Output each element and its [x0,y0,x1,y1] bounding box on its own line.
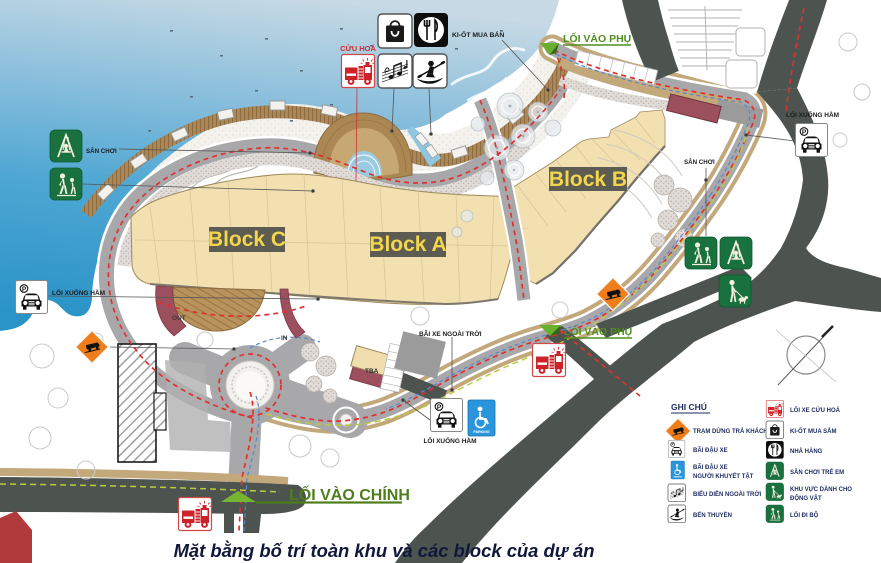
svg-text:SÂN CHƠI: SÂN CHƠI [86,148,117,155]
svg-text:OUT: OUT [172,315,186,322]
svg-text:Block B: Block B [549,168,627,191]
svg-text:IN: IN [281,335,288,342]
svg-text:BÃI XE NGOÀI TRỜI: BÃI XE NGOÀI TRỜI [419,329,482,338]
svg-text:BẾN THUYỀN: BẾN THUYỀN [693,512,732,519]
svg-text:Block A: Block A [369,233,446,256]
svg-text:NHÀ HÀNG: NHÀ HÀNG [790,448,823,455]
svg-text:ĐỘNG VẬT: ĐỘNG VẬT [790,494,822,502]
svg-text:LỐI VÀO PHỤ: LỐI VÀO PHỤ [564,324,632,338]
svg-text:BÃI ĐẬU XE: BÃI ĐẬU XE [693,464,728,471]
svg-text:Mặt bằng bố trí toàn khu và cá: Mặt bằng bố trí toàn khu và các block củ… [174,540,595,561]
svg-text:KI-ỐT MUA SẮM: KI-ỐT MUA SẮM [790,427,836,435]
svg-text:CỨU HOÁ: CỨU HOÁ [340,44,376,53]
svg-text:BÃI ĐẬU XE: BÃI ĐẬU XE [693,447,728,454]
svg-text:LỐI VÀO PHỤ: LỐI VÀO PHỤ [563,31,631,45]
svg-text:TRẠM DỪNG TRẢ KHÁCH: TRẠM DỪNG TRẢ KHÁCH [693,428,768,435]
svg-text:GHI CHÚ: GHI CHÚ [671,401,707,412]
svg-text:NGƯỜI KHUYẾT TẬT: NGƯỜI KHUYẾT TẬT [693,472,754,480]
svg-text:BIỂU DIỄN NGOÀI TRỜI: BIỂU DIỄN NGOÀI TRỜI [693,490,761,498]
svg-text:LỐI XE CỨU HOÁ: LỐI XE CỨU HOÁ [790,407,841,414]
svg-text:LỐI VÀO CHÍNH: LỐI VÀO CHÍNH [289,484,410,504]
svg-text:Block C: Block C [208,228,286,251]
svg-text:KHU VỰC DÀNH CHO: KHU VỰC DÀNH CHO [790,486,852,493]
svg-text:SÂN CHƠI: SÂN CHƠI [684,159,715,166]
svg-text:LỐI ĐI BỘ: LỐI ĐI BỘ [790,511,819,519]
svg-text:SÂN CHƠI TRẺ EM: SÂN CHƠI TRẺ EM [790,469,844,476]
svg-text:TBA: TBA [365,368,379,375]
